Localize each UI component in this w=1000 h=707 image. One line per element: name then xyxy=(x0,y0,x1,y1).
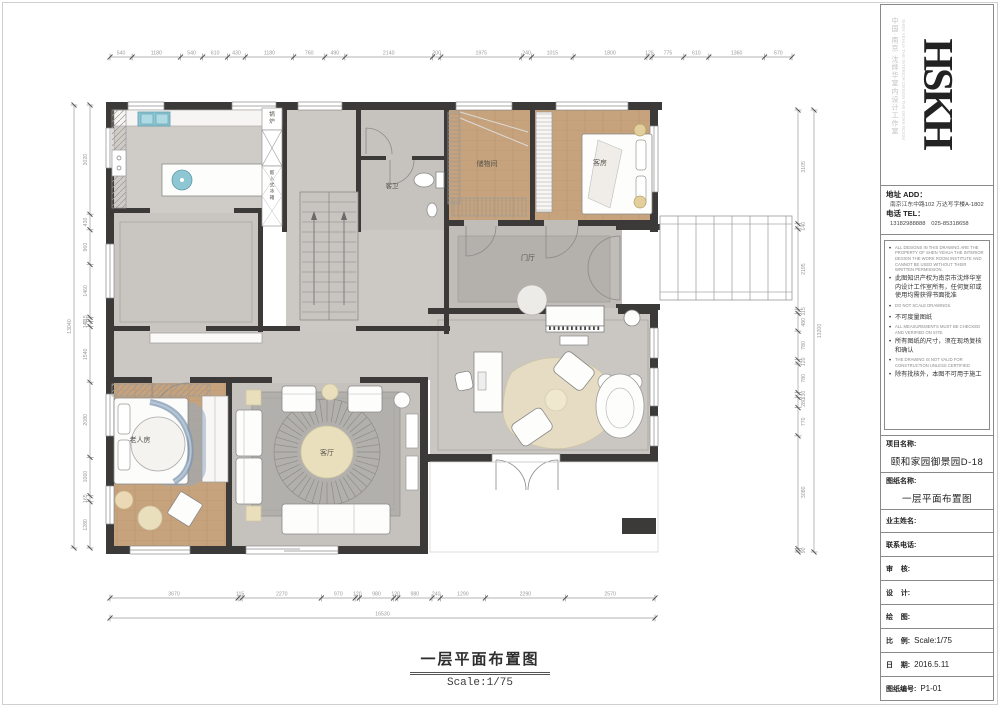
note-item: •DO NOT SCALE DRAWINGS. xyxy=(889,303,986,311)
storage-shelf xyxy=(448,112,460,204)
svg-text:490: 490 xyxy=(330,51,339,57)
note-item: •ALL MEASUREMENTS MUST BE CHECKED AND VE… xyxy=(889,324,986,335)
dim-top: 5401180540610430118076049021402001975240… xyxy=(108,51,795,61)
armchair xyxy=(596,374,644,438)
svg-text:1460: 1460 xyxy=(83,285,89,297)
svg-text:13200: 13200 xyxy=(817,324,823,339)
svg-text:13040: 13040 xyxy=(67,319,73,334)
svg-text:430: 430 xyxy=(83,218,89,227)
entry-steps xyxy=(660,216,792,300)
note-item: •ALL DESIGNS IN THIS DRAWING ARE THE PRO… xyxy=(889,245,986,273)
note-item: •除有批核外，本图不可用于施工 xyxy=(889,371,986,379)
window xyxy=(456,102,512,110)
svg-text:2270: 2270 xyxy=(276,592,288,598)
phone-value: 13182988888 025-85318658 xyxy=(886,220,988,228)
svg-text:125: 125 xyxy=(645,51,654,57)
window xyxy=(298,102,342,110)
coffee-table xyxy=(545,389,567,411)
svg-text:2080: 2080 xyxy=(83,414,89,426)
window xyxy=(650,416,658,446)
svg-text:130: 130 xyxy=(801,391,807,400)
svg-text:120: 120 xyxy=(353,592,362,598)
label-elder-room: 老人房 xyxy=(130,435,151,444)
svg-text:610: 610 xyxy=(211,51,220,57)
label-foyer: 门厅 xyxy=(521,253,535,262)
field-rows: 业主姓名: 联系电话: 审 核: 设 计: 绘 图: 比 例:Scale:1/7… xyxy=(881,509,993,700)
svg-text:120: 120 xyxy=(391,592,400,598)
piano xyxy=(546,306,604,326)
svg-text:200: 200 xyxy=(432,51,441,57)
svg-text:3670: 3670 xyxy=(168,592,180,598)
svg-text:115: 115 xyxy=(236,592,244,598)
field-owner: 业主姓名: xyxy=(881,510,993,533)
phone-label: 电话 TEL： xyxy=(886,209,988,220)
round-table xyxy=(138,506,162,530)
svg-text:1800: 1800 xyxy=(604,51,616,57)
field-check: 审 核: xyxy=(881,556,993,580)
window xyxy=(106,394,114,436)
svg-text:165: 165 xyxy=(83,494,89,503)
svg-text:2570: 2570 xyxy=(604,592,616,598)
svg-text:760: 760 xyxy=(305,51,314,57)
svg-text:140: 140 xyxy=(83,320,89,329)
foyer-furniture xyxy=(517,285,547,315)
note-item: •不可度量图纸 xyxy=(889,314,986,322)
svg-text:970: 970 xyxy=(334,592,343,598)
dim-bottom: 3670115227097012098012098024012902290257… xyxy=(108,592,658,602)
label-boiler: 锅炉 xyxy=(269,110,275,125)
field-drawing-no: 图纸编号:P1-01 xyxy=(881,676,993,700)
logo-box: 中国·南京 沈烨华室内设计工作室 SHEN YEHUA THE INTERIOR… xyxy=(881,5,993,186)
svg-text:2290: 2290 xyxy=(520,592,532,598)
window xyxy=(650,368,658,406)
address-label: 地址 ADD： xyxy=(886,190,988,201)
caption-scale: Scale:1/75 xyxy=(385,677,575,689)
field-design: 设 计: xyxy=(881,580,993,604)
field-draw: 绘 图: xyxy=(881,604,993,628)
address-box: 地址 ADD： 南京江东中路102 万达写字楼A-1802 电话 TEL： 13… xyxy=(881,186,993,235)
foyer-rug xyxy=(517,285,547,315)
svg-text:775: 775 xyxy=(664,51,673,57)
side-table xyxy=(624,310,640,326)
svg-text:980: 980 xyxy=(411,592,420,598)
drawing-name-value: 一层平面布置图 xyxy=(886,491,988,505)
svg-text:115: 115 xyxy=(801,307,807,315)
svg-text:1290: 1290 xyxy=(457,592,469,598)
terrace-outline xyxy=(430,462,658,552)
label-fridge: 嵌入式冰箱 xyxy=(270,169,275,201)
terrace-pier xyxy=(622,518,656,534)
svg-text:960: 960 xyxy=(83,243,89,252)
svg-text:1060: 1060 xyxy=(83,471,89,483)
svg-text:1180: 1180 xyxy=(151,51,162,57)
project-name-label: 项目名称: xyxy=(886,439,988,449)
svg-text:1360: 1360 xyxy=(731,51,743,57)
dim-bottom_total: 16530 xyxy=(108,612,658,622)
svg-text:770: 770 xyxy=(801,417,807,426)
svg-text:670: 670 xyxy=(774,51,783,57)
project-name-box: 项目名称: 颐和家园御景园D-18 xyxy=(881,435,993,472)
svg-text:780: 780 xyxy=(801,341,807,350)
dim-right_total: 13200 xyxy=(811,108,824,555)
caption-title: 一层平面布置图 xyxy=(410,648,549,675)
svg-text:430: 430 xyxy=(232,51,241,57)
piano-bench xyxy=(560,336,588,345)
window xyxy=(130,546,190,554)
svg-text:140: 140 xyxy=(801,222,807,231)
floor-plan-drawing: 锅炉 嵌入式冰箱 客卫 储物间 客房 门厅 老人房 客厅 54011805406… xyxy=(0,0,876,707)
logo-side-text-en: SHEN YEHUA THE INTERIOR DESIGN THE WORK … xyxy=(901,19,906,169)
note-item: •所有图纸的尺寸，须在现场复核和确认 xyxy=(889,338,986,355)
svg-text:610: 610 xyxy=(692,51,701,57)
window xyxy=(106,486,114,524)
svg-text:3105: 3105 xyxy=(801,161,807,173)
title-block: 中国·南京 沈烨华室内设计工作室 SHEN YEHUA THE INTERIOR… xyxy=(880,4,994,701)
svg-text:480: 480 xyxy=(801,318,807,327)
sofa xyxy=(236,410,262,456)
svg-text:980: 980 xyxy=(372,592,381,598)
svg-text:1540: 1540 xyxy=(83,348,89,360)
note-item: •此图知识产权为南京市沈烨华室内设计工作室所有，任何复印或使用均需获得书面批准 xyxy=(889,275,986,300)
svg-text:780: 780 xyxy=(801,374,807,383)
svg-text:16530: 16530 xyxy=(375,612,390,618)
dim-left_total: 13040 xyxy=(67,103,78,551)
label-guest-bath: 客卫 xyxy=(386,181,400,190)
svg-text:540: 540 xyxy=(187,51,196,57)
drawing-name-label: 图纸名称: xyxy=(886,476,988,486)
storage-rack xyxy=(452,198,526,216)
svg-text:120: 120 xyxy=(801,357,807,366)
field-scale: 比 例:Scale:1/75 xyxy=(881,628,993,652)
logo-side-text-cn: 中国·南京 沈烨华室内设计工作室 xyxy=(889,17,899,173)
svg-text:240: 240 xyxy=(432,592,441,598)
sofa-long xyxy=(282,504,390,534)
bidet xyxy=(427,203,437,217)
field-date: 日 期:2016.5.11 xyxy=(881,652,993,676)
svg-text:540: 540 xyxy=(117,51,126,57)
dim-right: 3105140219511548078012078013028077030809… xyxy=(795,108,808,555)
armchair xyxy=(282,386,316,412)
svg-text:2140: 2140 xyxy=(383,51,395,57)
desk-chair xyxy=(454,371,473,392)
field-contact: 联系电话: xyxy=(881,532,993,556)
window xyxy=(556,102,628,110)
hall-console xyxy=(150,333,262,343)
sliding-door xyxy=(246,546,338,554)
elder-closet xyxy=(112,384,210,396)
label-living-room: 客厅 xyxy=(320,448,334,457)
svg-text:3020: 3020 xyxy=(83,154,89,166)
drawing-name-box: 图纸名称: 一层平面布置图 xyxy=(881,472,993,509)
svg-text:1280: 1280 xyxy=(83,519,89,531)
window xyxy=(650,328,658,358)
notes-box: •ALL DESIGNS IN THIS DRAWING ARE THE PRO… xyxy=(884,240,990,430)
note-item: •THE DRAWING IS NOT VALID FOR CONSTRUCTI… xyxy=(889,357,986,368)
project-name-value: 颐和家园御景园D-18 xyxy=(886,454,988,468)
svg-text:1015: 1015 xyxy=(547,51,559,57)
drawing-caption: 一层平面布置图 Scale:1/75 xyxy=(385,648,575,689)
staircase xyxy=(300,192,358,320)
svg-text:90: 90 xyxy=(801,547,807,553)
company-logo: HSKH xyxy=(913,38,961,147)
label-guest-room: 客房 xyxy=(593,158,607,167)
living-room-furniture xyxy=(236,384,418,534)
window xyxy=(128,102,164,110)
svg-text:2195: 2195 xyxy=(801,263,807,275)
window xyxy=(106,244,114,298)
svg-text:280: 280 xyxy=(801,398,807,407)
address-value: 南京江东中路102 万达写字楼A-1802 xyxy=(886,201,988,209)
svg-text:1975: 1975 xyxy=(475,51,487,57)
dining-floor xyxy=(110,212,262,332)
toilet xyxy=(414,173,434,187)
dim-left: 302043096014601151401540208010601651280 xyxy=(83,103,94,551)
svg-text:3080: 3080 xyxy=(801,486,807,498)
label-storage: 储物间 xyxy=(477,159,498,168)
armchair xyxy=(348,386,382,412)
svg-text:1180: 1180 xyxy=(264,51,275,57)
svg-text:240: 240 xyxy=(522,51,531,57)
sofa xyxy=(236,458,262,504)
